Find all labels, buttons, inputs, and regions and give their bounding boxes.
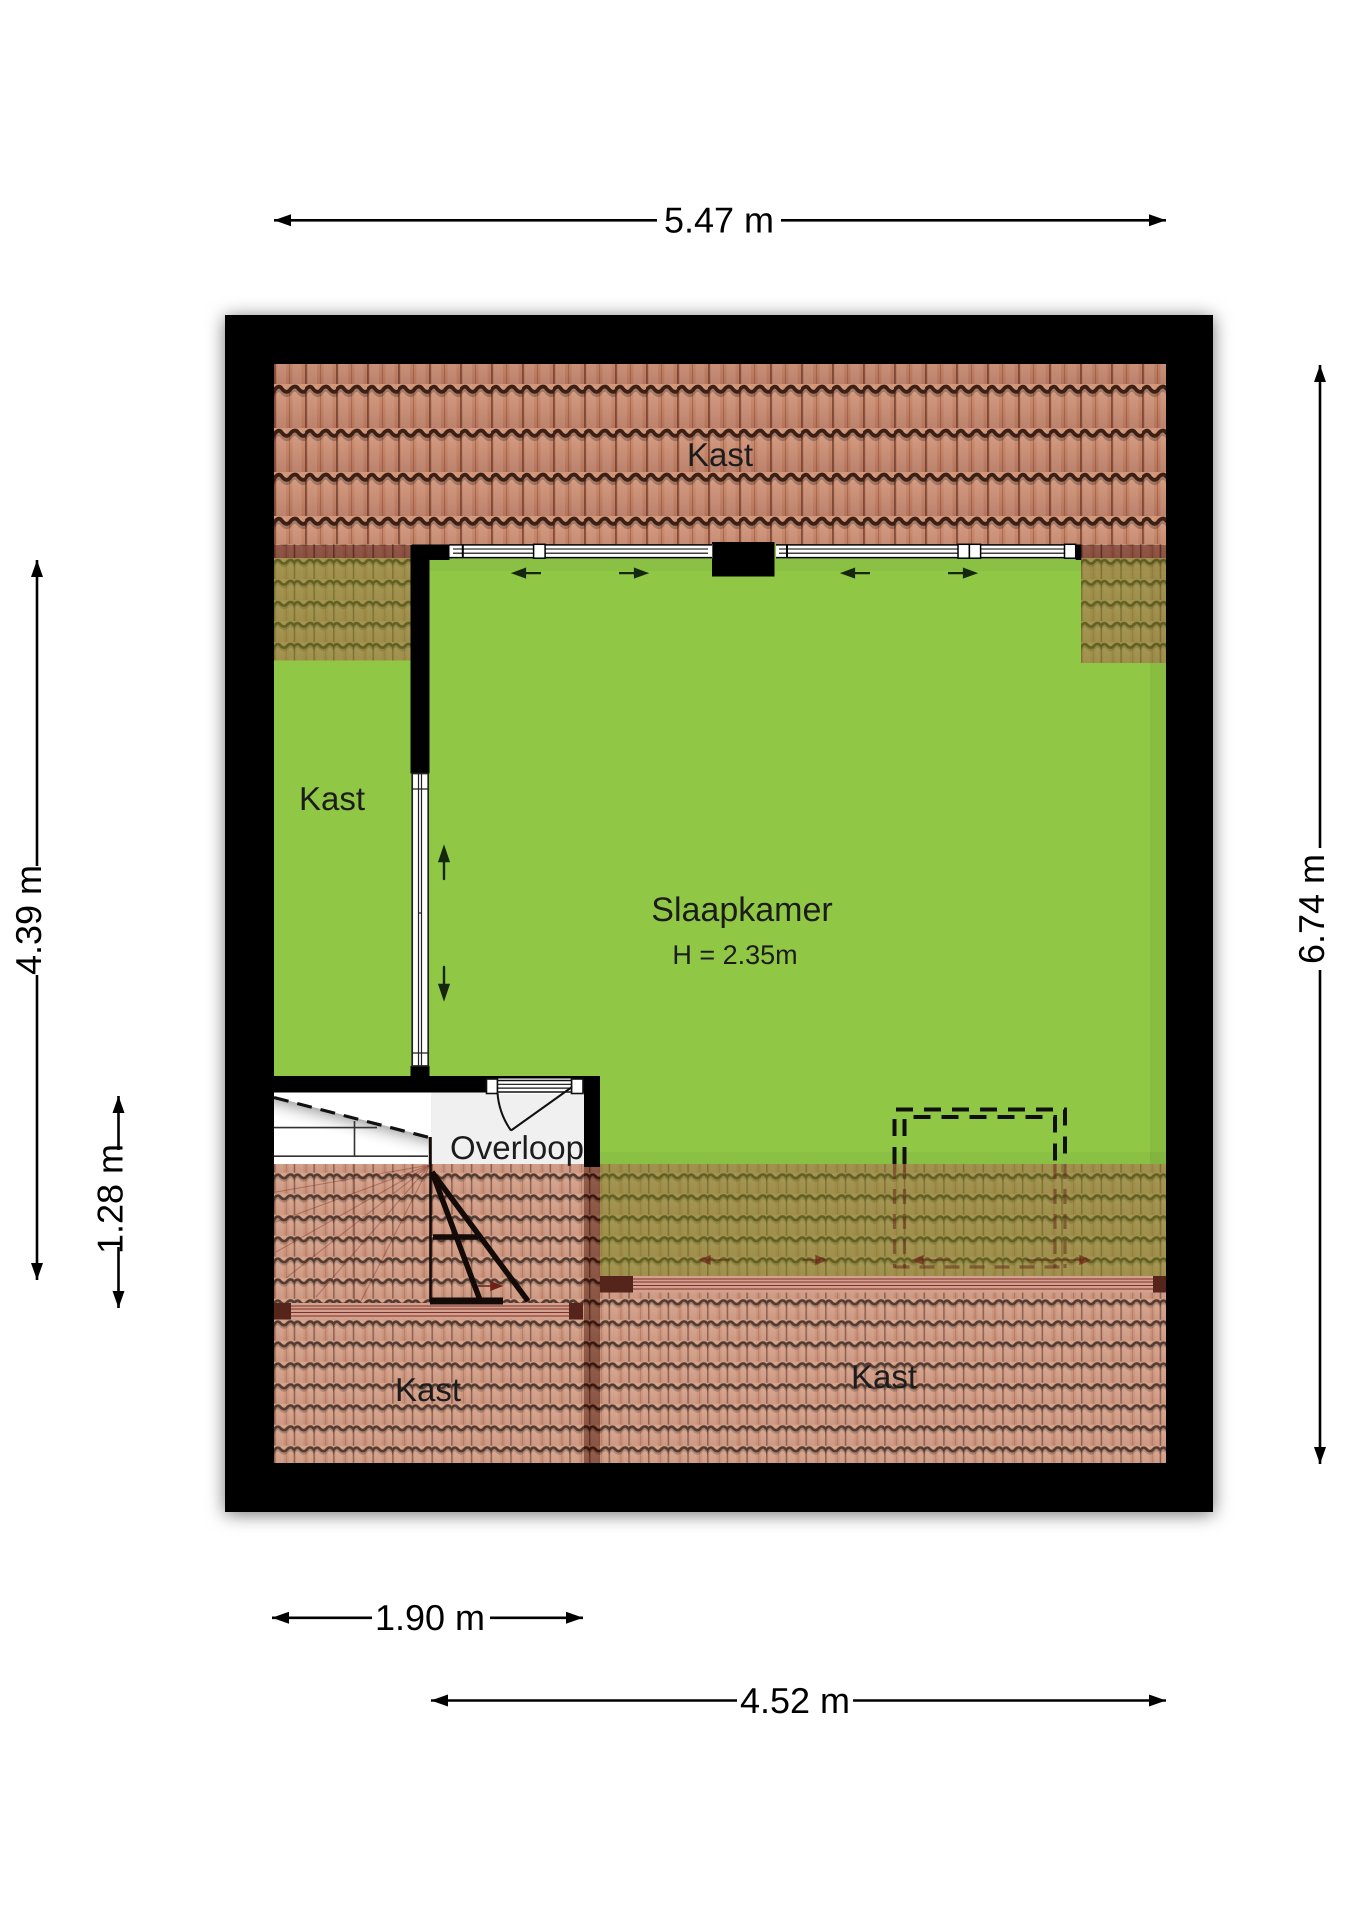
svg-text:Kast: Kast xyxy=(299,780,365,817)
svg-text:Overloop: Overloop xyxy=(450,1129,584,1166)
svg-text:5.47 m: 5.47 m xyxy=(664,200,774,241)
svg-text:H = 2.35m: H = 2.35m xyxy=(672,940,797,970)
svg-text:1.90 m: 1.90 m xyxy=(375,1597,485,1638)
svg-text:4.52 m: 4.52 m xyxy=(740,1680,850,1721)
svg-text:1.28 m: 1.28 m xyxy=(90,1144,131,1254)
svg-text:Slaapkamer: Slaapkamer xyxy=(651,891,832,929)
svg-text:6.74 m: 6.74 m xyxy=(1291,854,1332,964)
svg-text:Kast: Kast xyxy=(687,436,753,473)
svg-text:Kast: Kast xyxy=(851,1358,917,1395)
svg-text:Kast: Kast xyxy=(395,1371,461,1408)
svg-text:4.39 m: 4.39 m xyxy=(8,865,49,975)
